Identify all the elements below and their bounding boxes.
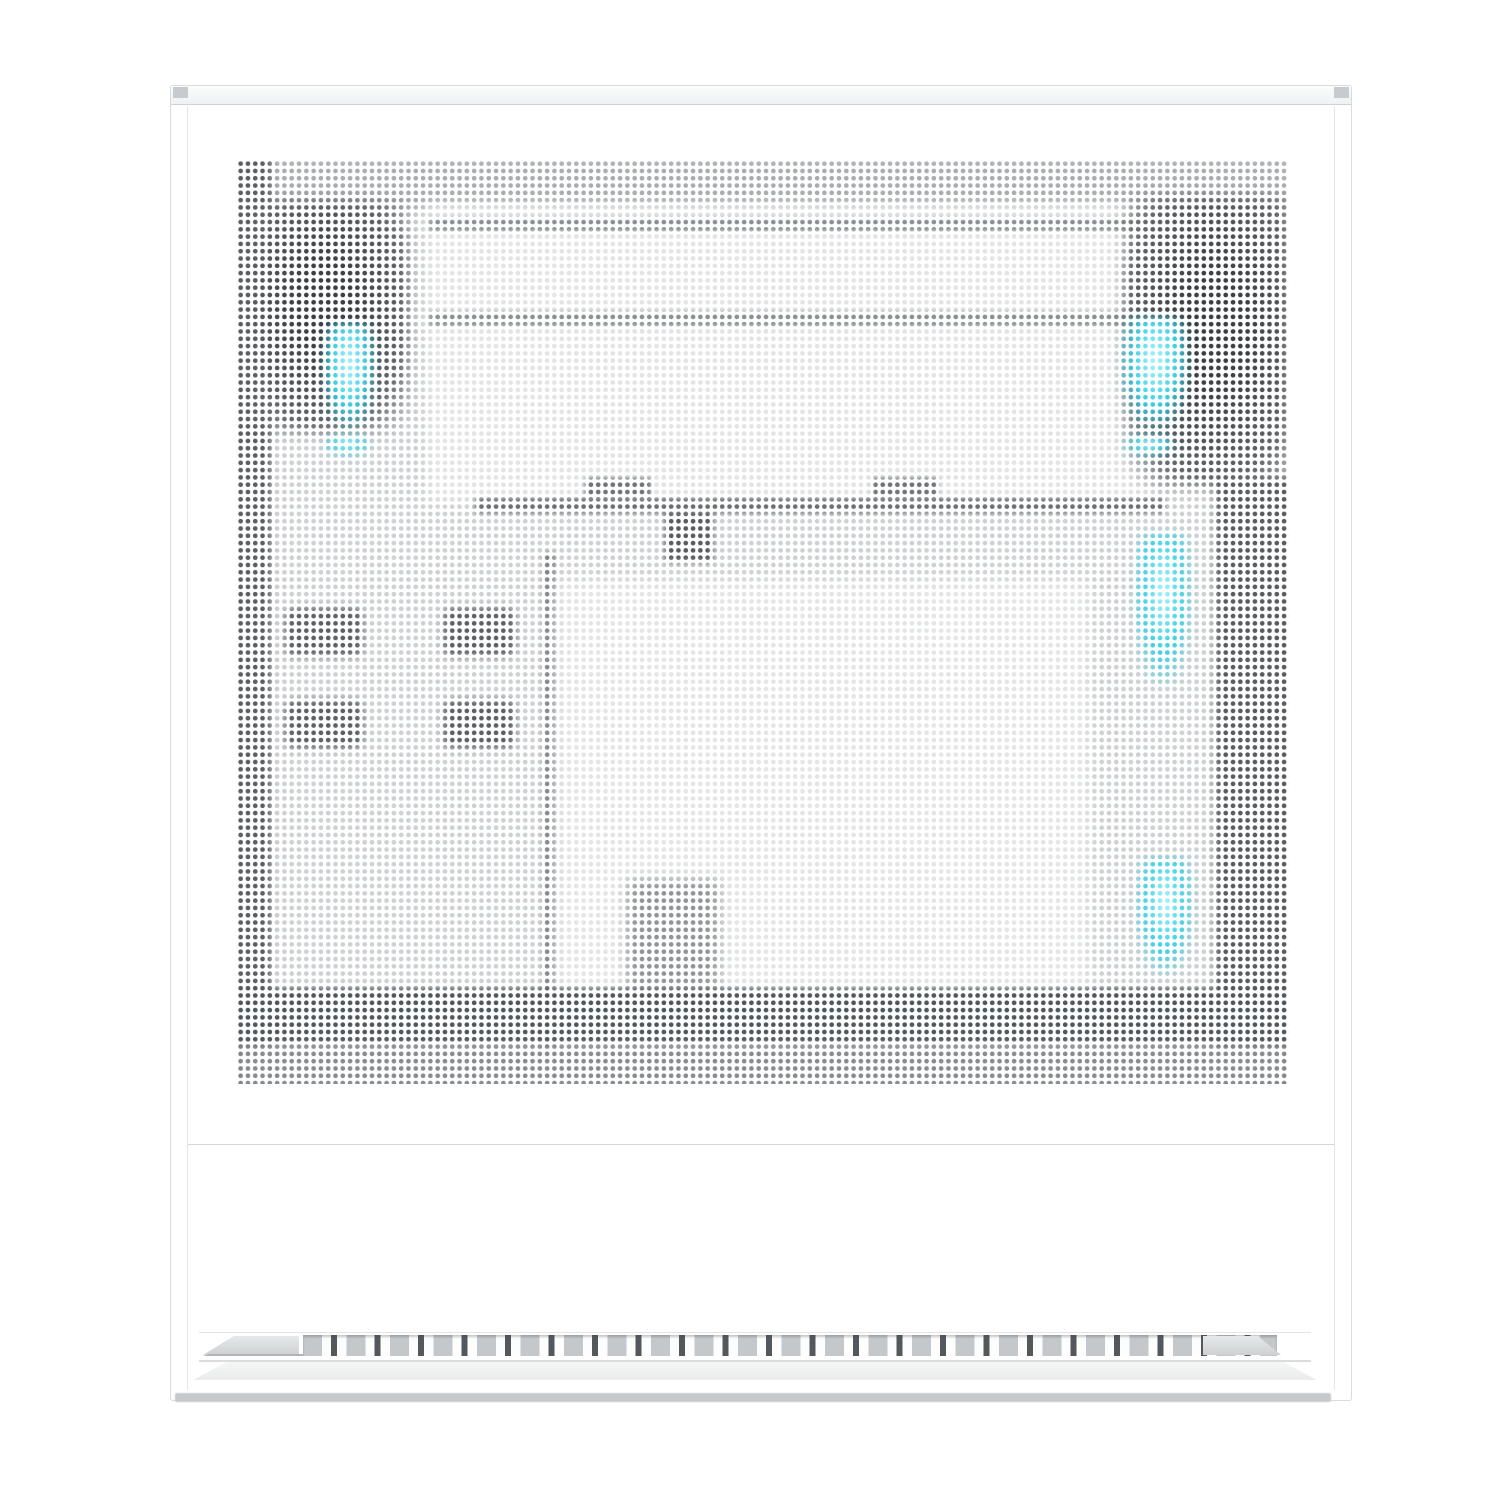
top-left-hinge-tab (173, 87, 188, 98)
case-top-bezel (171, 86, 1351, 105)
bottom-vent-recess (199, 1332, 1311, 1359)
case-base-shelf (193, 1362, 1317, 1380)
panel-seam-line (188, 1144, 1334, 1145)
case-ground-shadow (175, 1393, 1331, 1402)
top-right-hinge-tab (1334, 87, 1349, 98)
mesh-perforation-overlay (237, 160, 1289, 1084)
vent-slot-row (303, 1335, 1277, 1356)
right-panel-gap-line (1334, 106, 1335, 1390)
vent-ramp-left (203, 1336, 299, 1355)
pc-case (170, 85, 1352, 1401)
left-panel-gap-line (187, 106, 188, 1390)
vent-ledge-line (199, 1360, 1311, 1362)
vent-ramp-left-shadow (203, 1354, 303, 1356)
mesh-panel (237, 160, 1289, 1084)
